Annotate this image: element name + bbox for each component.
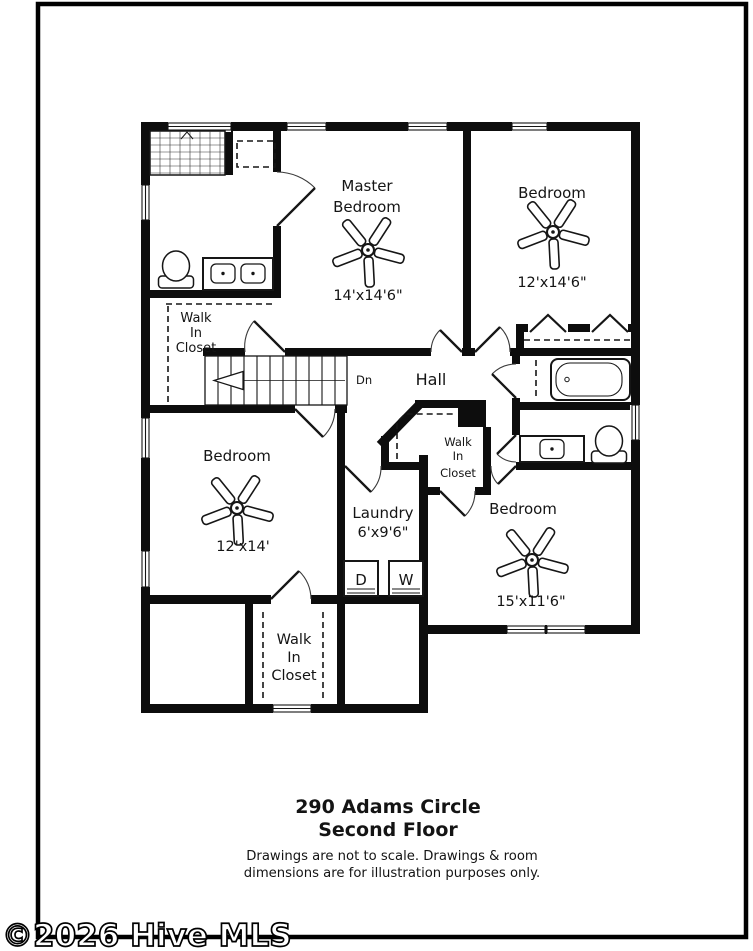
dryer-label: D bbox=[355, 571, 367, 589]
room-label: Laundry bbox=[352, 504, 413, 522]
door bbox=[431, 330, 462, 352]
shower-icon bbox=[150, 131, 225, 175]
room-walk-in-closet-middle: Walk In Closet bbox=[440, 435, 476, 480]
chimney-chase bbox=[458, 400, 486, 427]
room-label: In bbox=[453, 449, 464, 463]
room-dimensions: 14'x14'6" bbox=[333, 288, 402, 304]
room-dimensions: 12'x14' bbox=[216, 539, 269, 555]
door bbox=[245, 321, 285, 352]
door bbox=[492, 364, 516, 398]
room-dimensions: 15'x11'6" bbox=[496, 594, 565, 610]
room-label: Walk bbox=[180, 311, 212, 326]
window bbox=[140, 551, 151, 587]
address-line1: 290 Adams Circle bbox=[295, 796, 481, 818]
room-dimensions: 12'x14'6" bbox=[517, 275, 586, 291]
ceiling-fan-icon bbox=[517, 199, 590, 270]
window bbox=[140, 418, 151, 458]
room-label: Walk bbox=[277, 632, 312, 648]
door bbox=[491, 466, 516, 484]
disclaimer-line1: Drawings are not to scale. Drawings & ro… bbox=[246, 849, 538, 864]
ceiling-fan-icon bbox=[332, 217, 405, 288]
stairs-direction-label: Dn bbox=[356, 373, 372, 387]
room-label: Closet bbox=[176, 341, 217, 356]
mls-watermark: ©2026 Hive MLS bbox=[2, 918, 292, 951]
room-label: Bedroom bbox=[203, 447, 271, 465]
window bbox=[512, 121, 547, 132]
room-label: Closet bbox=[440, 466, 476, 480]
room-label: In bbox=[190, 326, 202, 341]
washer-label: W bbox=[399, 571, 414, 589]
window bbox=[547, 625, 585, 635]
address-line2: Second Floor bbox=[318, 819, 458, 841]
window bbox=[507, 625, 545, 635]
room-label: In bbox=[287, 650, 300, 666]
door bbox=[277, 172, 315, 226]
door bbox=[271, 571, 311, 599]
floor-plan-page: Master Bedroom 14'x14'6" Bedroom 12'x14'… bbox=[0, 0, 753, 951]
sink-vanity bbox=[520, 436, 584, 462]
window bbox=[287, 121, 326, 132]
ceiling-fan-icon bbox=[201, 475, 274, 546]
room-dimensions: 6'x9'6" bbox=[358, 525, 409, 541]
door bbox=[295, 409, 335, 437]
room-label: Bedroom bbox=[518, 184, 586, 202]
room-laundry: Laundry 6'x9'6" bbox=[352, 504, 413, 541]
window bbox=[630, 405, 641, 440]
room-label: Bedroom bbox=[489, 500, 557, 518]
ceiling-fan-icon bbox=[496, 527, 569, 598]
door bbox=[345, 466, 381, 492]
footer: 290 Adams Circle Second Floor Drawings a… bbox=[244, 796, 540, 881]
room-label: Closet bbox=[271, 668, 316, 684]
room-label: Walk bbox=[444, 435, 472, 449]
room-walk-in-closet-bottom: Walk In Closet bbox=[271, 632, 316, 684]
door bbox=[497, 435, 516, 462]
stairs bbox=[205, 356, 347, 405]
bathtub-icon bbox=[551, 359, 630, 400]
floor-plan-drawing: Master Bedroom 14'x14'6" Bedroom 12'x14'… bbox=[0, 0, 753, 951]
window bbox=[273, 704, 311, 714]
sink-icon bbox=[241, 264, 265, 283]
door bbox=[440, 491, 475, 516]
window bbox=[140, 185, 151, 220]
window bbox=[408, 121, 447, 132]
sink-icon bbox=[540, 440, 564, 459]
toilet-icon bbox=[592, 426, 627, 463]
sink-icon bbox=[211, 264, 235, 283]
toilet-icon bbox=[159, 251, 194, 288]
disclaimer-line2: dimensions are for illustration purposes… bbox=[244, 866, 540, 881]
double-sink-vanity bbox=[203, 258, 273, 290]
room-walk-in-closet-left: Walk In Closet bbox=[176, 311, 217, 356]
linen-closet-dashed bbox=[237, 141, 275, 167]
room-label: Master bbox=[341, 177, 393, 195]
door bbox=[475, 327, 510, 352]
room-label-hall: Hall bbox=[416, 370, 447, 389]
room-label: Bedroom bbox=[333, 198, 401, 216]
